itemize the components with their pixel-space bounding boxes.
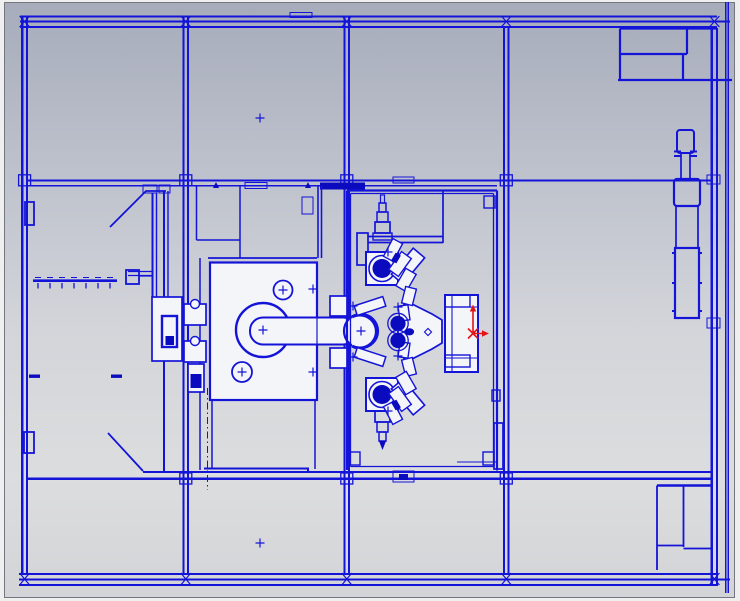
right-equipment <box>492 29 732 571</box>
frame-structure <box>19 2 730 593</box>
application-window <box>0 0 740 601</box>
machine-drawing <box>0 0 740 601</box>
turret-roller-top <box>390 316 405 331</box>
turret-roller-bottom <box>390 333 405 348</box>
left-guard <box>24 191 182 472</box>
